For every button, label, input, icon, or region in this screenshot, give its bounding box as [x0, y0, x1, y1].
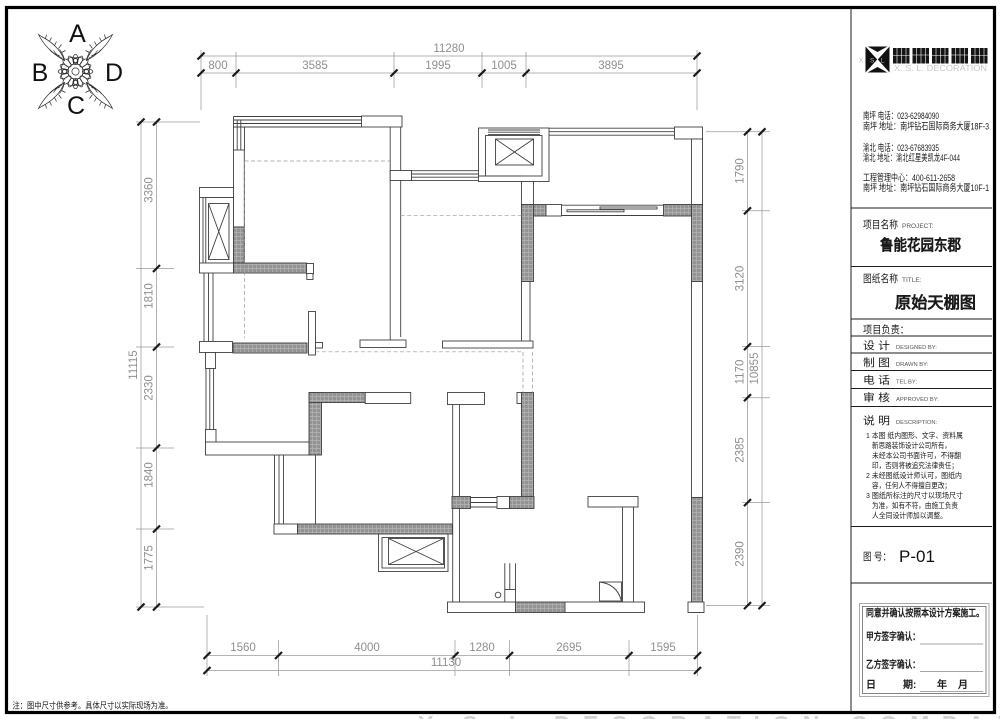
- svg-text:3360: 3360: [144, 177, 156, 203]
- svg-text:PROJECT:: PROJECT:: [902, 223, 934, 230]
- svg-text:鲁能花园东郡: 鲁能花园东郡: [880, 237, 961, 254]
- svg-text:APPROVED BY:: APPROVED BY:: [896, 397, 939, 403]
- svg-text:南坪 地址：南坪钻石国际商务大厦10F-1: 南坪 地址：南坪钻石国际商务大厦10F-1: [863, 182, 989, 194]
- svg-text:说 明: 说 明: [863, 414, 890, 427]
- svg-text:1 本图 纸内图形、文字、资料属: 1 本图 纸内图形、文字、资料属: [866, 430, 963, 440]
- svg-text:D: D: [105, 59, 123, 87]
- svg-text:审 核: 审 核: [863, 391, 891, 404]
- svg-text:1560: 1560: [230, 642, 256, 654]
- svg-text:渝北 地址：渝北红星美凯龙4F-044: 渝北 地址：渝北红星美凯龙4F-044: [863, 152, 960, 164]
- svg-text:800: 800: [208, 60, 227, 72]
- svg-text:1840: 1840: [144, 462, 156, 488]
- svg-text:新思路装饰设计公司所有，: 新思路装饰设计公司所有，: [872, 440, 951, 450]
- svg-text:印，否则将被追究法律责任；: 印，否则将被追究法律责任；: [872, 460, 958, 470]
- svg-text:乙方签字确认：: 乙方签字确认：: [866, 658, 920, 671]
- svg-text:TITLE:: TITLE:: [902, 277, 922, 284]
- svg-text:制 图: 制 图: [863, 356, 890, 369]
- svg-text:DESCRIPTION:: DESCRIPTION:: [896, 420, 938, 426]
- svg-text:南坪 电话：023-62984090: 南坪 电话：023-62984090: [863, 110, 939, 122]
- svg-text:X. S. L. DECORATION: X. S. L. DECORATION: [894, 63, 987, 73]
- svg-text:3895: 3895: [598, 60, 624, 72]
- svg-text:1995: 1995: [425, 60, 451, 72]
- svg-text:设 计: 设 计: [863, 339, 891, 352]
- svg-text:甲方签字确认：: 甲方签字确认：: [866, 630, 920, 643]
- svg-text:2385: 2385: [735, 437, 747, 463]
- svg-text:电 话: 电 话: [863, 374, 891, 387]
- svg-text:1280: 1280: [469, 642, 495, 654]
- svg-text:4000: 4000: [354, 642, 380, 654]
- svg-text:DRAWN BY:: DRAWN BY:: [896, 362, 929, 368]
- svg-text:3585: 3585: [302, 60, 328, 72]
- svg-text:2330: 2330: [144, 375, 156, 401]
- svg-text:P-01: P-01: [899, 547, 935, 566]
- svg-text:2 未经图纸设计师认可，图纸内: 2 未经图纸设计师认可，图纸内: [866, 470, 962, 480]
- svg-text:南坪 地址：南坪钻石国际商务大厦18F-3: 南坪 地址：南坪钻石国际商务大厦18F-3: [863, 121, 989, 133]
- svg-text:原始天棚图: 原始天棚图: [895, 294, 976, 312]
- svg-text:A: A: [69, 20, 86, 48]
- svg-text:TEL BY:: TEL BY:: [896, 380, 917, 386]
- svg-text:B: B: [32, 59, 49, 87]
- svg-text:项目负责：: 项目负责：: [863, 323, 909, 336]
- svg-text:项目名称: 项目名称: [863, 218, 898, 231]
- svg-text:人全同设计师加以调整。: 人全同设计师加以调整。: [872, 510, 947, 520]
- svg-text:为准，如有不符，由施工负责: 为准，如有不符，由施工负责: [872, 500, 958, 510]
- svg-text:注：图中尺寸供参考。具体尺寸以实际现场为准。: 注：图中尺寸供参考。具体尺寸以实际现场为准。: [13, 700, 173, 711]
- svg-text:X. S. L: X. S. L: [859, 58, 886, 65]
- svg-text:11115: 11115: [128, 350, 140, 379]
- svg-text:容，任何人不得擅自更改；: 容，任何人不得擅自更改；: [872, 480, 951, 490]
- svg-text:11130: 11130: [431, 657, 461, 669]
- svg-text:同意并确认按照本设计方案施工。: 同意并确认按照本设计方案施工。: [866, 607, 984, 620]
- svg-text:未经本公司书面许可，不得翻: 未经本公司书面许可，不得翻: [872, 450, 961, 460]
- svg-text:10855: 10855: [749, 353, 761, 385]
- svg-text:C: C: [67, 92, 85, 120]
- svg-text:1775: 1775: [144, 545, 156, 571]
- svg-text:11280: 11280: [433, 43, 464, 55]
- svg-text:1005: 1005: [491, 60, 517, 72]
- svg-text:1790: 1790: [735, 158, 747, 184]
- svg-text:1595: 1595: [650, 642, 676, 654]
- svg-text:1810: 1810: [144, 283, 156, 309]
- svg-text:3 图纸所标注的尺寸以现场尺寸: 3 图纸所标注的尺寸以现场尺寸: [866, 490, 963, 500]
- svg-text:图纸名称: 图纸名称: [863, 272, 898, 285]
- svg-text:DESIGNED BY:: DESIGNED BY:: [896, 345, 937, 351]
- svg-text:2695: 2695: [556, 642, 582, 654]
- svg-text:3120: 3120: [735, 266, 747, 292]
- svg-text:2390: 2390: [735, 541, 747, 567]
- svg-text:图 号：: 图 号：: [863, 551, 891, 563]
- svg-text:1170: 1170: [735, 360, 747, 385]
